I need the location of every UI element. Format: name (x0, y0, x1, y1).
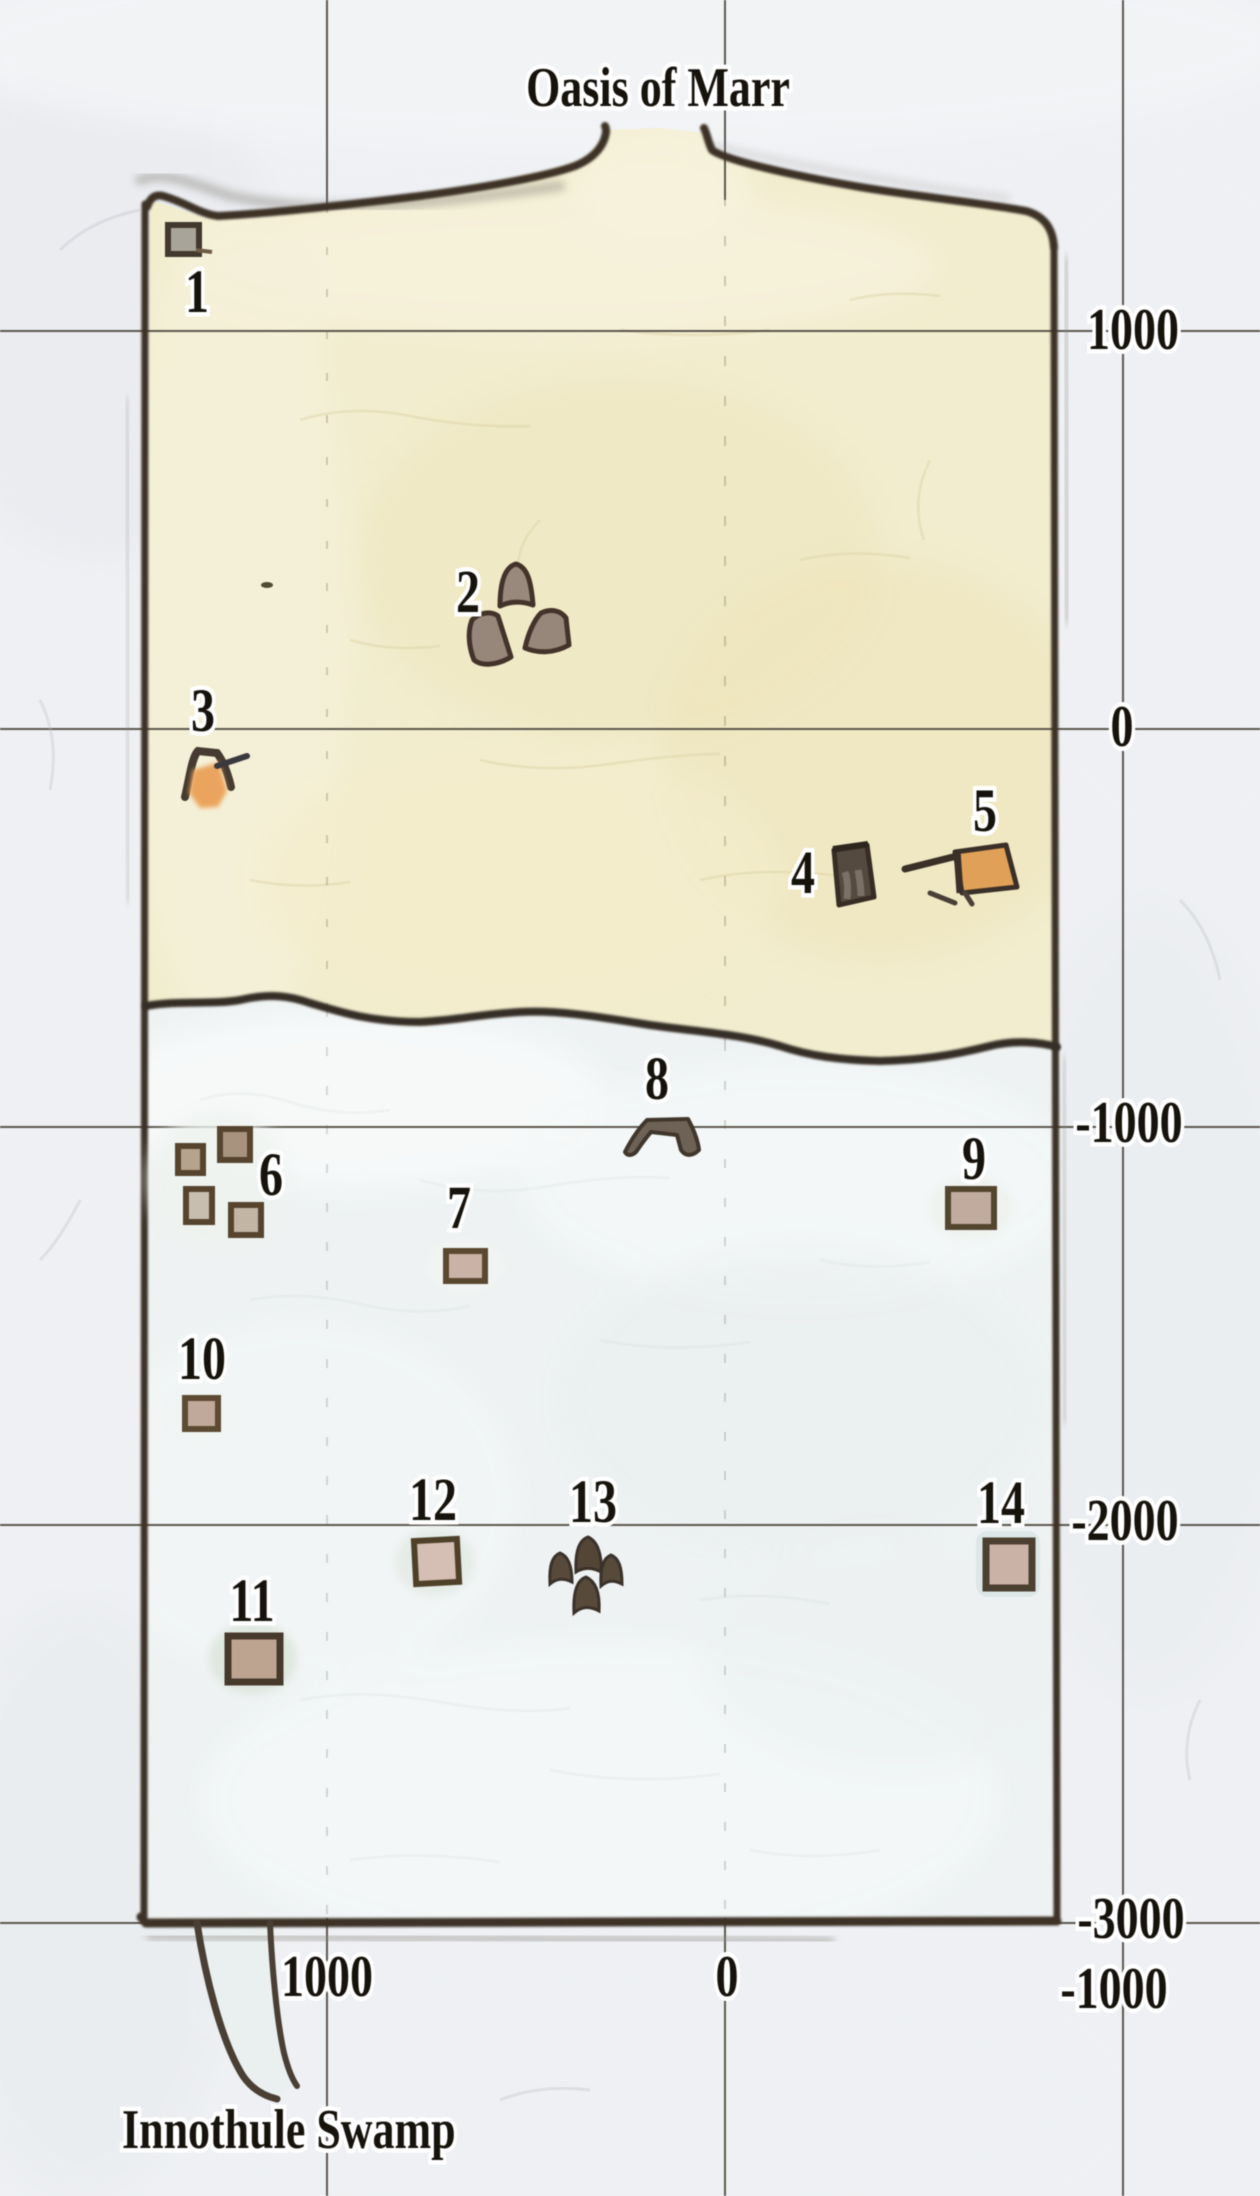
svg-text:6: 6 (259, 1140, 283, 1208)
svg-text:-1000: -1000 (1075, 1091, 1182, 1156)
svg-text:0: 0 (1110, 695, 1133, 760)
svg-text:-2000: -2000 (1071, 1489, 1178, 1554)
svg-text:Oasis of Marr: Oasis of Marr (526, 56, 790, 118)
svg-text:1000: 1000 (1087, 298, 1179, 363)
svg-text:-1000: -1000 (1060, 1957, 1167, 2022)
svg-text:12: 12 (409, 1465, 457, 1533)
svg-text:1000: 1000 (281, 1945, 373, 2010)
svg-text:1: 1 (185, 257, 209, 325)
svg-text:7: 7 (447, 1173, 471, 1241)
svg-text:9: 9 (962, 1124, 986, 1192)
svg-text:14: 14 (977, 1468, 1025, 1536)
svg-text:0: 0 (715, 1945, 738, 2010)
svg-text:Innothule Swamp: Innothule Swamp (122, 2098, 456, 2160)
svg-text:4: 4 (791, 838, 815, 906)
svg-text:10: 10 (178, 1324, 226, 1392)
svg-text:8: 8 (645, 1044, 669, 1112)
svg-text:11: 11 (229, 1566, 274, 1634)
svg-text:5: 5 (973, 776, 997, 844)
svg-text:-3000: -3000 (1077, 1887, 1184, 1952)
svg-text:2: 2 (456, 557, 480, 625)
svg-text:13: 13 (569, 1467, 617, 1535)
svg-text:3: 3 (191, 676, 215, 744)
